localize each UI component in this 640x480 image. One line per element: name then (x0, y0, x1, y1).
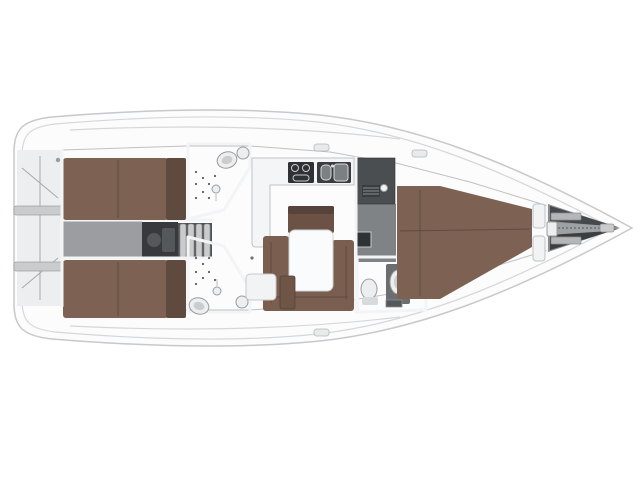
sink-small (321, 165, 331, 180)
faucet (331, 165, 334, 168)
deck-hatch (314, 329, 329, 336)
shower-mixer (212, 185, 220, 193)
stove (288, 162, 314, 183)
washbasin (237, 147, 249, 159)
windlass (547, 222, 557, 236)
locker-crossbar (551, 213, 581, 220)
swim-platform (14, 150, 62, 306)
shower-mixer (213, 287, 221, 295)
bow-pillar-lower (533, 236, 545, 261)
toilet-tank (362, 297, 378, 305)
yacht-floorplan-canvas (0, 0, 640, 480)
stool (280, 276, 295, 309)
locker-crossbar (551, 237, 581, 244)
sink-large (334, 164, 348, 181)
transom-step-lower (14, 262, 62, 271)
mast-step (250, 256, 253, 259)
bow-pillar-upper (533, 204, 545, 228)
salon-table (289, 230, 333, 291)
head-vent (386, 300, 402, 307)
locker-knob (381, 185, 388, 192)
aft-cabin-port-bed (63, 158, 168, 220)
yacht-floorplan (0, 0, 640, 480)
sofa-backrest-top (288, 206, 334, 214)
corridor-seat (357, 232, 371, 247)
aft-corridor-floor (62, 221, 142, 257)
aft-cabin-starboard (63, 260, 186, 318)
bow-roller (600, 224, 614, 232)
deck-hatch (412, 150, 427, 157)
transom-step-upper (14, 206, 62, 215)
toilet (361, 279, 377, 299)
aft-cabin-starboard-bed-edge (166, 260, 186, 318)
aft-cabin-port (63, 158, 186, 220)
engine-part-block (162, 228, 175, 252)
stern-fitting (56, 158, 60, 162)
engine-part-round (147, 233, 161, 247)
companionway-step (180, 224, 186, 257)
tall-locker (357, 158, 395, 204)
aft-cabin-port-bed-edge (166, 158, 186, 220)
aft-cabin-starboard-bed (63, 260, 168, 318)
side-cabinet (246, 274, 276, 300)
deck-hatch (314, 144, 329, 151)
